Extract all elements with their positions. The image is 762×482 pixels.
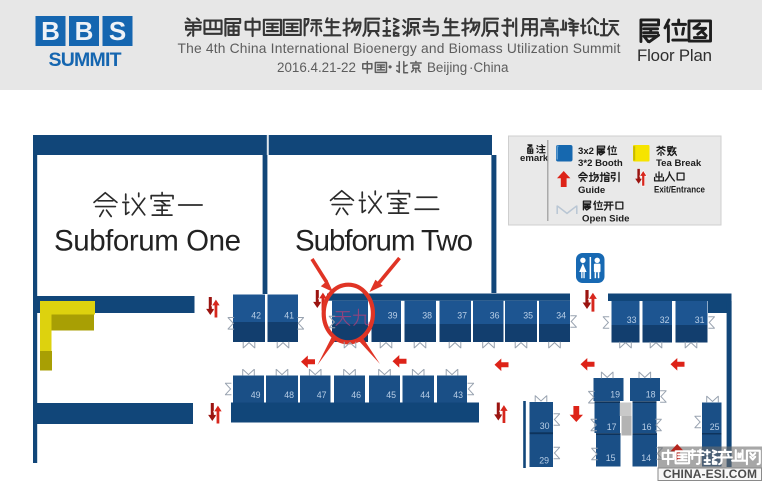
svg-text:·China: ·China xyxy=(469,60,509,75)
svg-text:48: 48 xyxy=(284,390,294,400)
svg-text:30: 30 xyxy=(540,421,550,431)
svg-text:B: B xyxy=(75,16,94,46)
svg-text:41: 41 xyxy=(284,311,294,321)
svg-text:37: 37 xyxy=(457,311,467,321)
svg-text:14: 14 xyxy=(641,453,651,463)
svg-text:S: S xyxy=(109,16,126,46)
svg-text:3*2 Booth: 3*2 Booth xyxy=(578,158,623,169)
svg-text:Exit/Entrance: Exit/Entrance xyxy=(654,185,705,195)
svg-text:17: 17 xyxy=(607,422,617,432)
svg-text:The 4th China International Bi: The 4th China International Bioenergy an… xyxy=(178,41,621,56)
svg-text:18: 18 xyxy=(646,390,656,400)
svg-text:Floor Plan: Floor Plan xyxy=(637,46,712,65)
svg-text:B: B xyxy=(41,16,60,46)
svg-text:25: 25 xyxy=(710,422,720,432)
svg-text:39: 39 xyxy=(388,311,398,321)
svg-text:3x2: 3x2 xyxy=(578,146,594,157)
svg-text:16: 16 xyxy=(642,422,652,432)
svg-text:31: 31 xyxy=(695,315,705,325)
svg-text:•: • xyxy=(388,60,392,74)
svg-text:46: 46 xyxy=(351,390,361,400)
svg-text:42: 42 xyxy=(251,311,261,321)
svg-text:29: 29 xyxy=(539,456,549,466)
svg-text:38: 38 xyxy=(422,311,432,321)
svg-text:2016.4.21-22: 2016.4.21-22 xyxy=(277,60,356,75)
svg-text:Guide: Guide xyxy=(578,185,605,196)
svg-text:45: 45 xyxy=(386,390,396,400)
svg-text:15: 15 xyxy=(606,453,616,463)
svg-text:SUMMIT: SUMMIT xyxy=(49,49,122,71)
svg-text:36: 36 xyxy=(490,311,500,321)
svg-text:Subforum One: Subforum One xyxy=(54,225,241,258)
svg-text:emark: emark xyxy=(520,153,549,164)
svg-text:34: 34 xyxy=(556,311,566,321)
svg-text:47: 47 xyxy=(317,390,327,400)
svg-text:Subforum Two: Subforum Two xyxy=(295,225,473,258)
svg-text:Open Side: Open Side xyxy=(582,214,629,225)
svg-text:Beijing: Beijing xyxy=(427,60,467,75)
svg-text:49: 49 xyxy=(251,390,261,400)
svg-text:CHINA-ESI.COM: CHINA-ESI.COM xyxy=(663,467,757,481)
svg-text:35: 35 xyxy=(523,311,533,321)
svg-text:Tea Break: Tea Break xyxy=(656,158,702,169)
svg-text:33: 33 xyxy=(627,315,637,325)
svg-text:43: 43 xyxy=(453,390,463,400)
svg-text:44: 44 xyxy=(420,390,430,400)
svg-text:32: 32 xyxy=(660,315,670,325)
svg-text:19: 19 xyxy=(610,390,620,400)
